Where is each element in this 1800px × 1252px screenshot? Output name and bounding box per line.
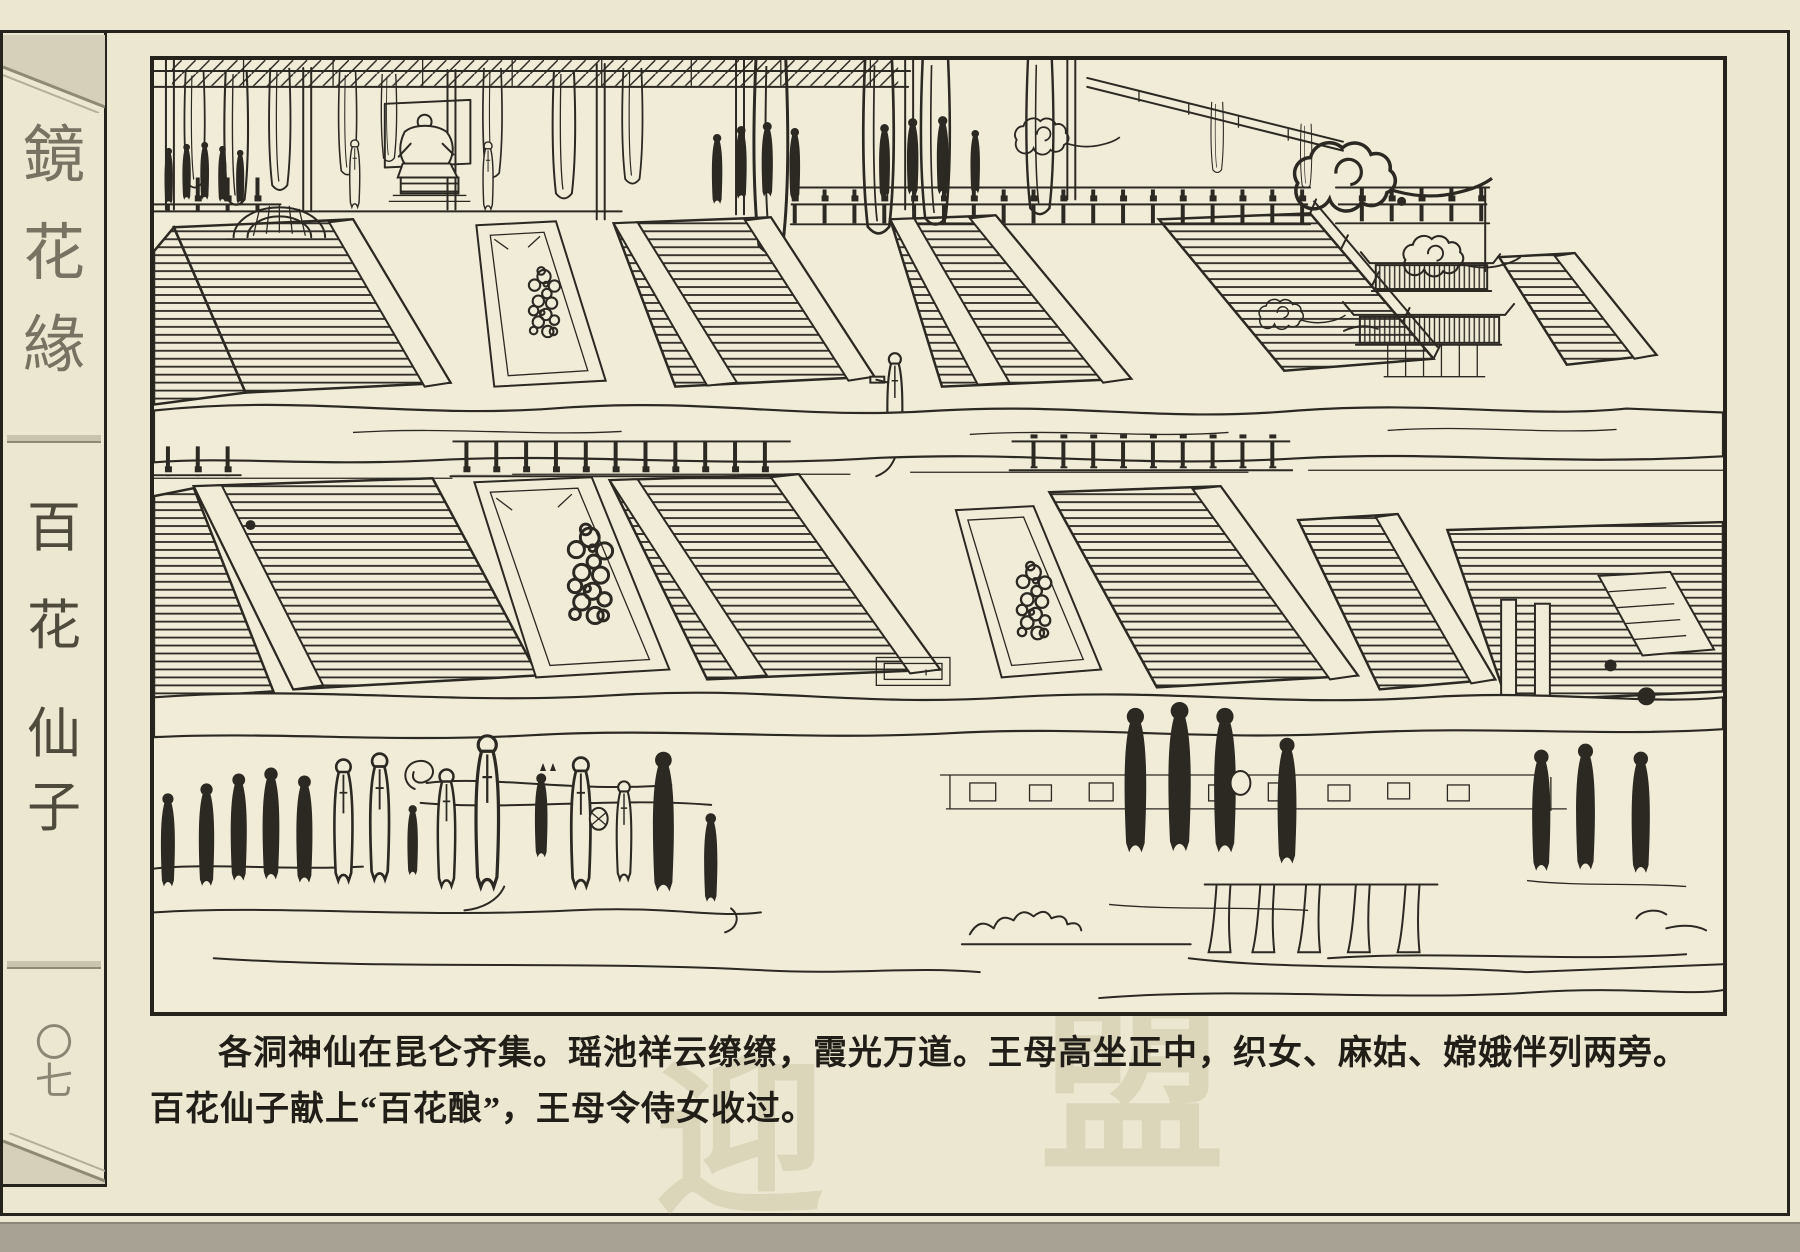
bird-dot [1637,687,1655,705]
caption-line-1: 各洞神仙在昆仑齐集。瑶池祥云缭缭，霞光万道。王母高坐正中，织女、麻姑、嫦娥伴列两… [150,1026,1730,1082]
figure-group-center [464,736,717,911]
episode-title-char: 仙 [3,707,105,761]
figure-group-left-white [334,754,455,886]
page-border-right [1787,30,1790,1216]
wang-mu-throne [385,100,471,202]
sidebar-border-bottom [0,1184,107,1187]
caption-line-2: 百花仙子献上“百花酿”，王母令侍女收过。 [150,1082,1730,1138]
figure-group-right [1532,744,1650,873]
corner-decoration-top [3,33,105,113]
sidebar: 鏡 花 緣 百 花 仙 子 〇 七 [3,33,105,1184]
series-title-char: 花 [3,223,105,285]
episode-title-char: 子 [3,781,105,835]
page-edge-shadow [0,1222,1800,1252]
page-border-bottom [0,1213,1790,1216]
stairs-tier1 [154,199,1656,404]
corner-decoration-bottom [3,1133,105,1184]
lower-right-terrace [962,885,1723,973]
mist-band-upper [154,405,1723,462]
kunlun-palace-illustration [154,60,1723,1012]
hall-ceiling [154,60,1343,151]
sidebar-divider [7,435,101,443]
episode-title-char: 花 [3,599,105,653]
illustration-panel [150,56,1727,1016]
comic-page: { "colors": { "paper": "#ece7d1", "panel… [0,0,1800,1250]
ground-mist-lines [154,866,1723,998]
sidebar-divider [7,961,101,969]
page-border-top [0,30,1790,33]
mist-band-ground [154,693,1723,806]
episode-title-char: 百 [3,501,105,555]
stairs-tier2 [154,474,1723,701]
page-number-char: 〇 [3,1025,105,1063]
tall-fairy [476,736,499,887]
page-number-char: 七 [3,1063,105,1101]
basket [1231,771,1251,795]
series-title-char: 緣 [3,315,105,377]
caption: 各洞神仙在昆仑齐集。瑶池祥云缭缭，霞光万道。王母高坐正中，织女、麻姑、嫦娥伴列两… [150,1026,1730,1138]
terrace-bench-band [940,775,1567,811]
bird-dot [1605,659,1617,671]
series-title-char: 鏡 [3,125,105,187]
bird-dot [1397,197,1406,206]
